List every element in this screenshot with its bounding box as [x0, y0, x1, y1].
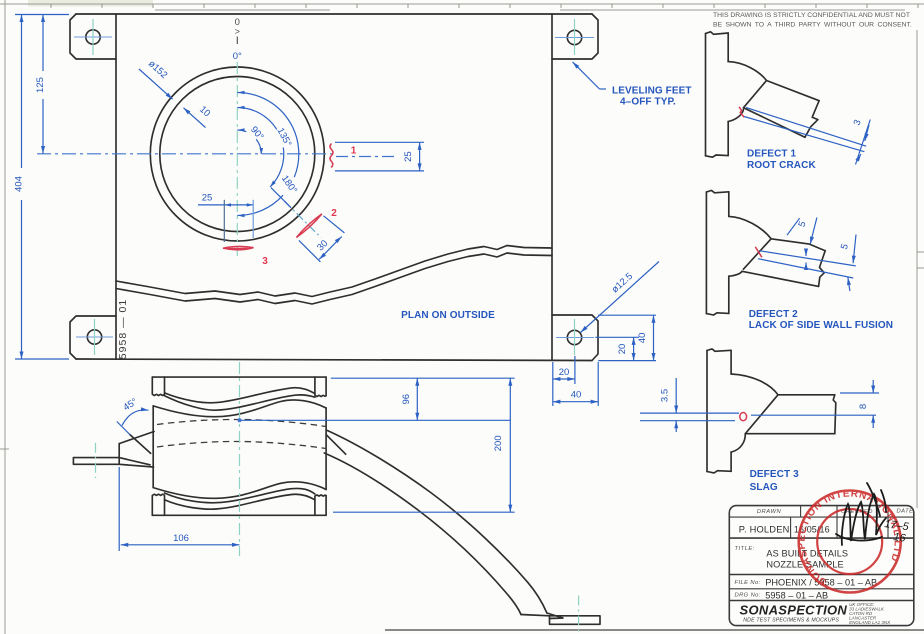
svg-text:3.5: 3.5 — [660, 389, 671, 402]
svg-text:FILE No:: FILE No: — [735, 580, 761, 586]
svg-text:DRAWN: DRAWN — [757, 509, 782, 515]
svg-text:2: 2 — [331, 208, 337, 219]
svg-text:25: 25 — [202, 193, 213, 204]
svg-text:DEFECT 3: DEFECT 3 — [750, 469, 799, 480]
svg-text:5958 — 01: 5958 — 01 — [117, 299, 129, 359]
svg-text:BE SHOWN TO A THIRD PARTY WITH: BE SHOWN TO A THIRD PARTY WITHOUT OUR CO… — [713, 22, 912, 29]
svg-text:DATE: DATE — [896, 509, 913, 515]
svg-text:404: 404 — [14, 176, 25, 192]
svg-text:SONASPECTION: SONASPECTION — [740, 603, 848, 618]
svg-text:1: 1 — [351, 146, 357, 157]
svg-text:25: 25 — [403, 151, 414, 162]
svg-text:LEVELING FEET: LEVELING FEET — [612, 86, 692, 97]
svg-text:>: > — [235, 27, 240, 37]
svg-text:96: 96 — [401, 394, 412, 405]
svg-text:DEFECT 2: DEFECT 2 — [749, 309, 798, 320]
svg-text:THIS DRAWING IS STRICTLY CONFI: THIS DRAWING IS STRICTLY CONFIDENTIAL AN… — [713, 12, 910, 19]
svg-text:PLAN ON OUTSIDE: PLAN ON OUTSIDE — [401, 310, 495, 321]
svg-text:125: 125 — [35, 77, 46, 93]
svg-text:ROOT CRACK: ROOT CRACK — [747, 160, 816, 171]
svg-text:3: 3 — [262, 256, 268, 267]
svg-text:DEFECT 1: DEFECT 1 — [747, 149, 796, 160]
svg-text:4–OFF TYP.: 4–OFF TYP. — [620, 97, 676, 108]
svg-text:20: 20 — [559, 367, 570, 378]
svg-text:P. HOLDEN: P. HOLDEN — [739, 525, 790, 535]
svg-text:5958 – 01 – AB: 5958 – 01 – AB — [765, 590, 828, 600]
svg-text:LACK OF SIDE WALL FUSION: LACK OF SIDE WALL FUSION — [749, 320, 893, 331]
svg-text:40: 40 — [571, 390, 582, 401]
svg-text:200: 200 — [493, 435, 504, 451]
svg-text:ENGLAND LA1 3NX: ENGLAND LA1 3NX — [849, 620, 891, 625]
svg-text:20: 20 — [617, 344, 628, 355]
svg-text:0°: 0° — [233, 51, 242, 62]
svg-text:106: 106 — [173, 533, 189, 544]
svg-text:TITLE:: TITLE: — [735, 546, 755, 552]
svg-text:DRG No:: DRG No: — [735, 593, 761, 599]
svg-text:NDE TEST SPECIMENS & MOCKUPS: NDE TEST SPECIMENS & MOCKUPS — [743, 618, 839, 624]
svg-text:SLAG: SLAG — [750, 482, 778, 493]
svg-text:8: 8 — [858, 404, 869, 409]
